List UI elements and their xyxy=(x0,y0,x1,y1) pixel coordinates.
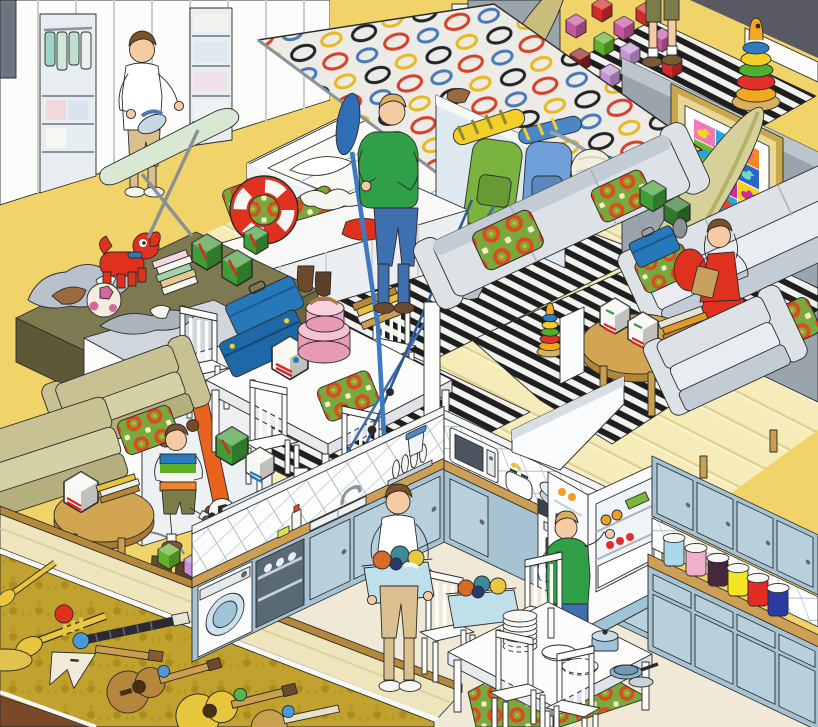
hand xyxy=(361,181,371,191)
patchwork-ball xyxy=(87,283,121,317)
red-knob-toy xyxy=(55,605,73,623)
illustration-stage: Isometric cutaway illustration of a clut… xyxy=(0,0,818,727)
linen-shelves xyxy=(42,96,94,152)
hand xyxy=(367,595,376,604)
saucepan xyxy=(592,629,618,651)
hand xyxy=(605,529,614,538)
open-wardrobe-hanging xyxy=(40,14,96,193)
wardrobe-dark-end xyxy=(0,0,16,78)
dog-collar xyxy=(128,252,142,258)
hatboxes-pink xyxy=(298,298,350,363)
hand xyxy=(423,591,432,600)
striped-shirt xyxy=(155,454,203,491)
home-illustration: Isometric cutaway illustration of a clut… xyxy=(0,0,818,727)
gray-plate xyxy=(629,677,653,687)
